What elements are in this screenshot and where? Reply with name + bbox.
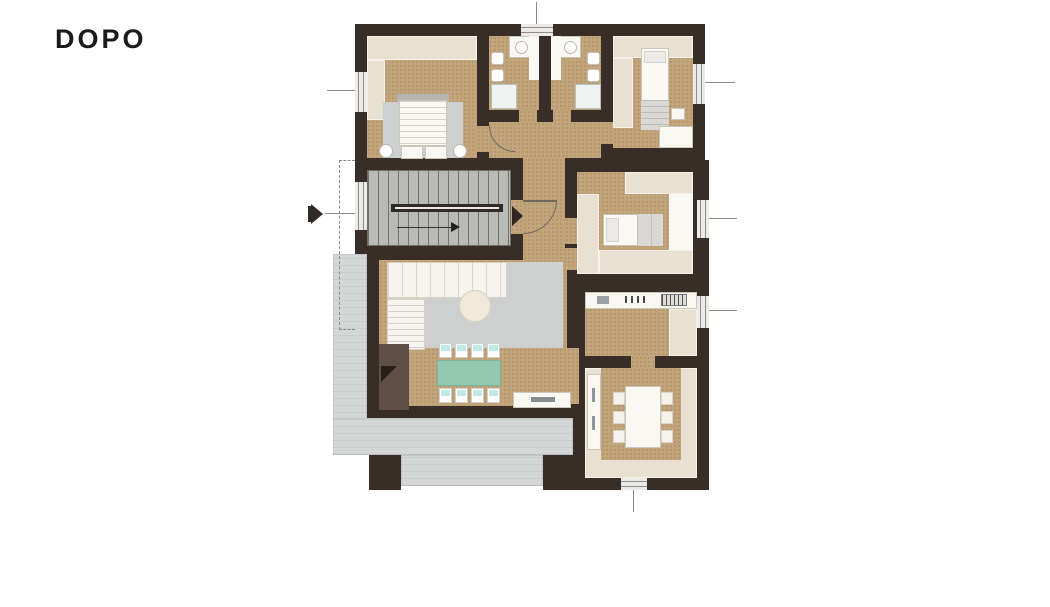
bath1-counter-side [529, 36, 539, 80]
kitchen-sink [597, 296, 609, 304]
bed2-desk [659, 126, 693, 148]
chair [455, 343, 468, 358]
bath2-shower [575, 84, 601, 109]
bathroom-2-door-opening [553, 110, 571, 122]
terrace-bottom [333, 418, 573, 455]
stair-rail-gap [395, 207, 499, 209]
wardrobe-bed3-bottom [599, 250, 693, 274]
building-entrance-marker [311, 204, 323, 224]
bedroom-3-door-opening [565, 218, 577, 244]
bath2-bidet [587, 69, 600, 82]
chair [487, 343, 500, 358]
dining-counter-item [592, 416, 595, 430]
window-kitchen [697, 296, 709, 328]
terrace-lower [401, 455, 543, 486]
bed-main-foot-right [425, 146, 447, 159]
sofa-vertical [387, 298, 425, 350]
stair-direction-arrow [451, 222, 460, 232]
building-entrance-bar [308, 206, 311, 222]
stair-direction-line [397, 227, 451, 228]
dining-chair [661, 411, 673, 424]
dining-table [625, 386, 661, 448]
floor-plan [325, 8, 755, 518]
chair [455, 388, 468, 403]
bath1-bidet [491, 69, 504, 82]
kitchen-appliance [661, 294, 687, 306]
sofa-horizontal [387, 262, 507, 298]
dining-chair [613, 411, 625, 424]
bed3-window-niche [669, 194, 693, 250]
bath2-counter-side [551, 36, 561, 80]
dining-chair [661, 430, 673, 443]
bath2-toilet [587, 52, 600, 65]
wardrobe-bed2-left [613, 58, 633, 128]
window-staircase [355, 182, 367, 230]
window-tick-right-1 [705, 82, 735, 83]
bed3-pillow [606, 218, 619, 242]
living-dining-table [437, 360, 501, 386]
entrance-dimension-line [325, 213, 355, 214]
bedroom-2-door-opening [601, 122, 613, 144]
chair [471, 343, 484, 358]
bedroom-main-door-opening [477, 126, 489, 152]
terrace-pillar-left [369, 455, 401, 490]
window-tick-left [327, 90, 355, 91]
window-bedroom-3 [697, 200, 709, 238]
dining-chair [613, 430, 625, 443]
wardrobe-main-top [367, 36, 477, 60]
page-title: DOPO [55, 24, 147, 55]
canopy-dashed-outline [339, 160, 355, 330]
kitchen-burner [643, 296, 645, 303]
kitchen-burner [631, 296, 633, 303]
window-bedroom-2 [693, 64, 705, 104]
window-bedroom-main [355, 72, 367, 112]
bed3-blanket [637, 214, 663, 246]
dining-chair [661, 392, 673, 405]
wardrobe-bed3-left [577, 194, 599, 274]
chair [471, 388, 484, 403]
entry-door-marker [512, 206, 523, 226]
dining-window-line [633, 490, 634, 512]
nightstand-left [379, 144, 393, 158]
bathroom-1-door-opening [519, 110, 537, 122]
vent-shaft [521, 24, 553, 36]
kitchen-dining-opening [631, 356, 655, 368]
chair [487, 388, 500, 403]
kitchen-burner [625, 296, 627, 303]
kitchen-right-unit [669, 309, 697, 356]
vent-shaft-line [536, 2, 537, 24]
terrace-pillar-right [543, 455, 575, 490]
coffee-table [459, 290, 491, 322]
dining-side-counter [587, 374, 601, 450]
kitchen-burner [637, 296, 639, 303]
bath1-sink [515, 41, 528, 54]
wardrobe-bed3-top [625, 172, 693, 194]
window-dining [621, 478, 647, 490]
bed2-stool [671, 108, 685, 120]
window-tick-right-3 [709, 310, 737, 311]
nightstand-right [453, 144, 467, 158]
bed-main-mattress [399, 100, 447, 146]
bath2-sink [564, 41, 577, 54]
chair [439, 388, 452, 403]
sideboard-tv [531, 397, 555, 402]
window-tick-right-2 [709, 218, 737, 219]
dining-chair [613, 392, 625, 405]
bed2-pillow [644, 51, 666, 63]
chair [439, 343, 452, 358]
dining-counter-item [592, 388, 595, 402]
bed-main-foot-left [401, 146, 423, 159]
bath1-toilet [491, 52, 504, 65]
fireplace-wedge [381, 366, 397, 382]
bath1-shower [491, 84, 517, 109]
